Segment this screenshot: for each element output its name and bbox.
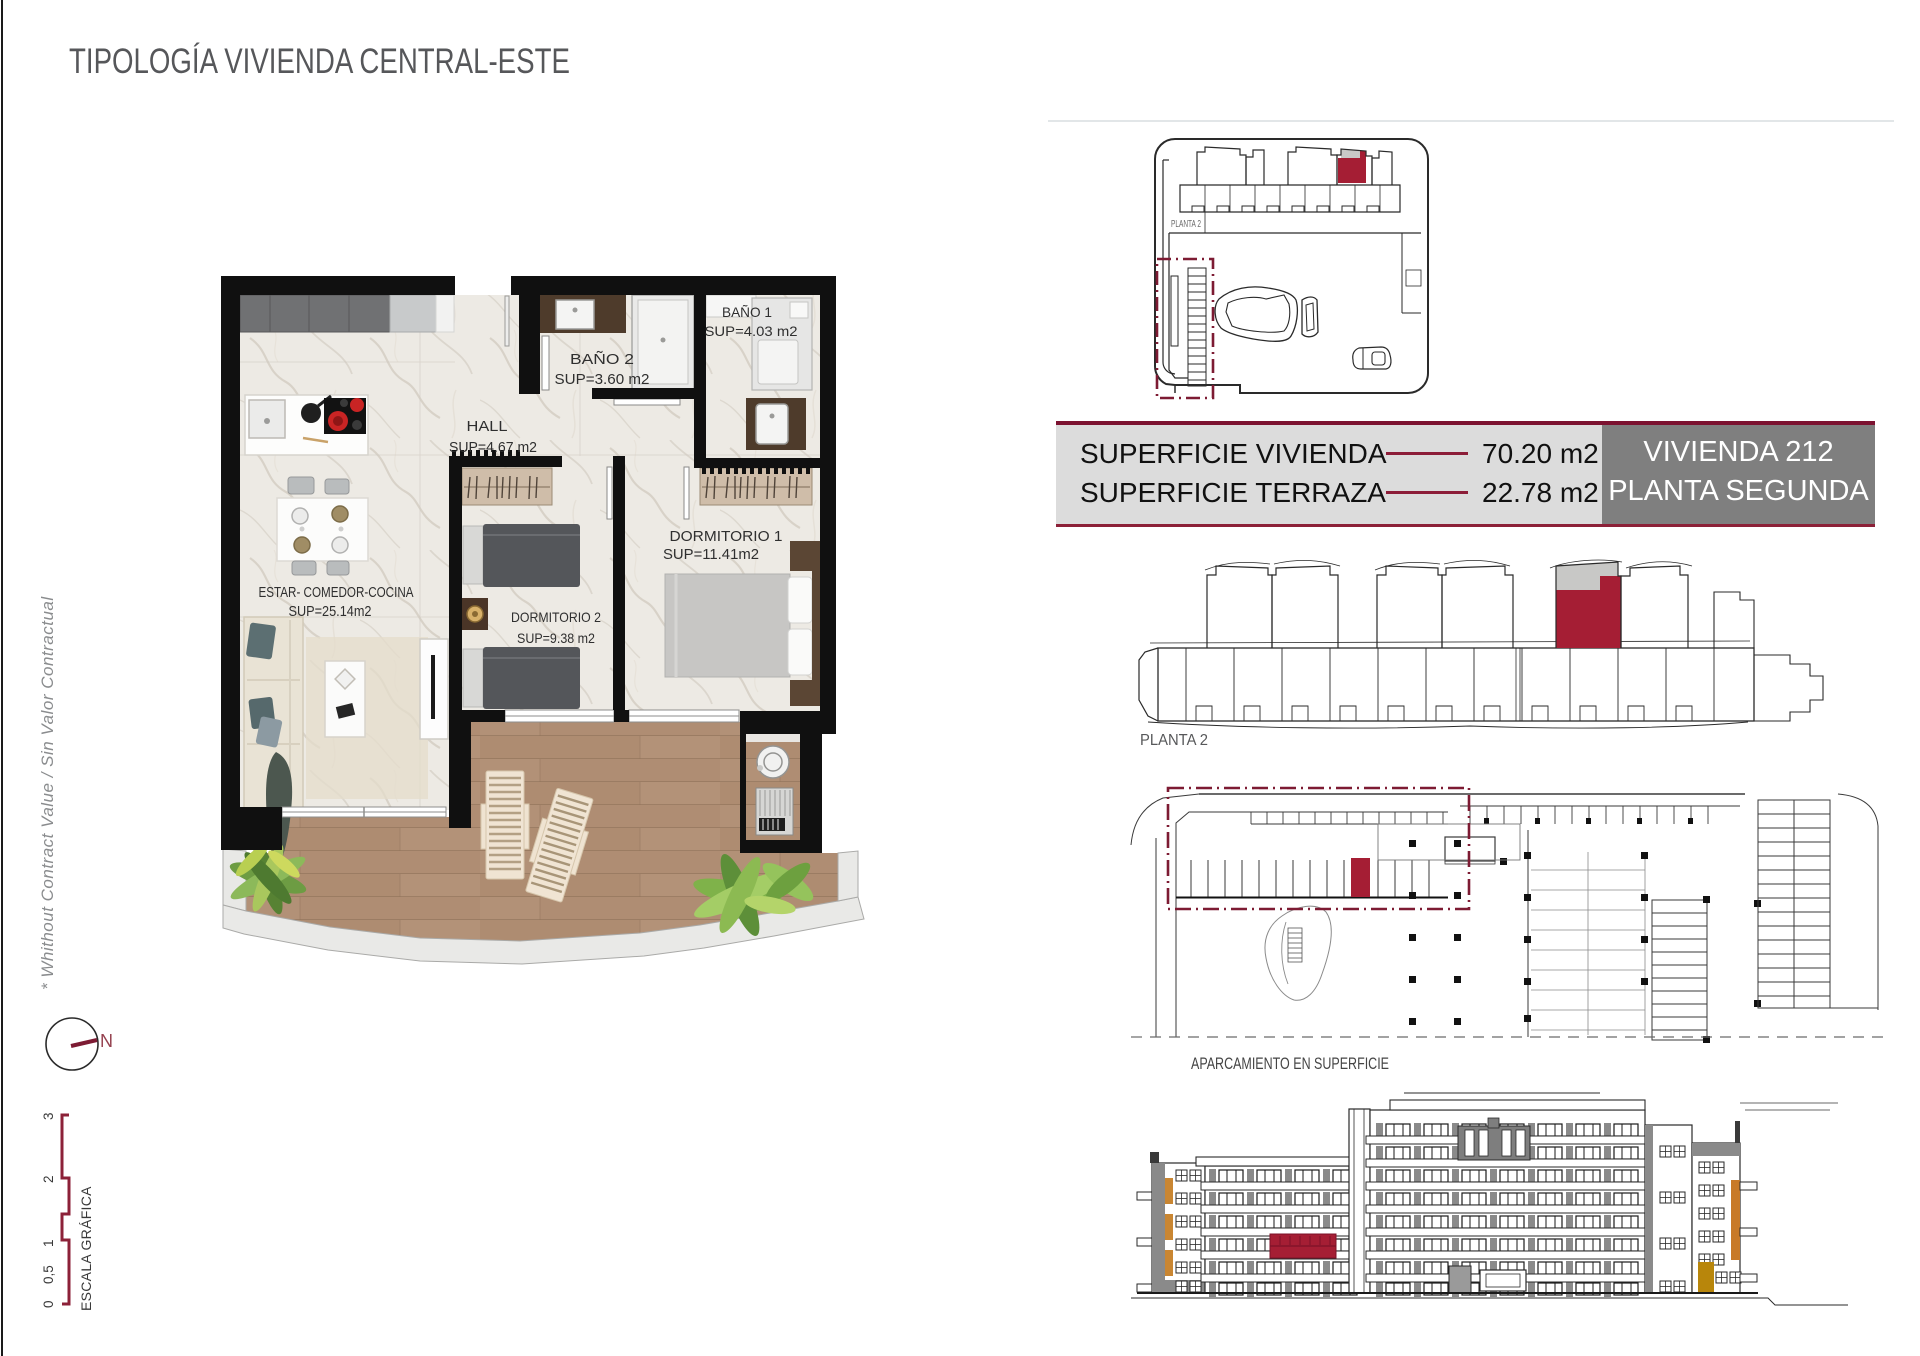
svg-text:0,5: 0,5 — [41, 1265, 56, 1284]
svg-text:SUP=4.03 m2: SUP=4.03 m2 — [705, 323, 798, 339]
svg-text:HALL: HALL — [467, 418, 508, 435]
svg-text:N: N — [100, 1031, 113, 1051]
svg-text:BAÑO 2: BAÑO 2 — [570, 351, 634, 368]
svg-text:SUP=4.67 m2: SUP=4.67 m2 — [449, 439, 537, 456]
svg-text:PLANTA 2: PLANTA 2 — [1140, 732, 1208, 749]
svg-text:DORMITORIO 2: DORMITORIO 2 — [511, 609, 601, 625]
svg-text:0: 0 — [41, 1300, 56, 1308]
svg-text:SUP=3.60 m2: SUP=3.60 m2 — [555, 371, 650, 388]
svg-text:SUP=25.14m2: SUP=25.14m2 — [289, 603, 372, 620]
svg-text:2: 2 — [41, 1175, 56, 1183]
svg-text:ESCALA GRÁFICA: ESCALA GRÁFICA — [78, 1186, 94, 1311]
svg-text:DORMITORIO 1: DORMITORIO 1 — [670, 528, 783, 545]
svg-text:ESTAR- COMEDOR-COCINA: ESTAR- COMEDOR-COCINA — [259, 584, 414, 601]
svg-text:1: 1 — [41, 1239, 56, 1247]
svg-text:BAÑO 1: BAÑO 1 — [722, 304, 772, 320]
svg-text:SUP=11.41m2: SUP=11.41m2 — [663, 546, 759, 563]
svg-text:PLANTA 2: PLANTA 2 — [1171, 219, 1201, 230]
svg-text:SUP=9.38 m2: SUP=9.38 m2 — [517, 630, 595, 646]
svg-text:APARCAMIENTO EN SUPERFICIE: APARCAMIENTO EN SUPERFICIE — [1191, 1054, 1389, 1073]
svg-text:3: 3 — [41, 1112, 56, 1120]
